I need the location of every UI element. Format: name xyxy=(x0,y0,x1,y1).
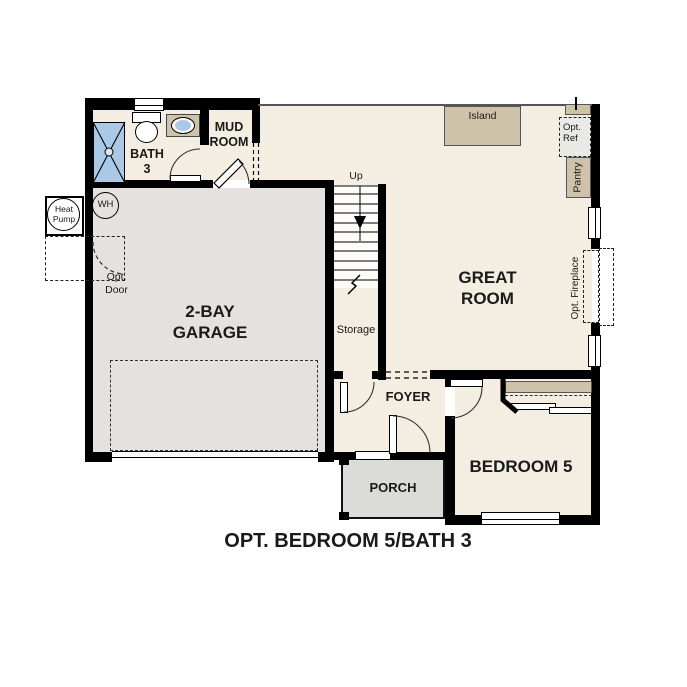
counter-tick xyxy=(575,97,577,110)
great-room-window-lower xyxy=(588,335,601,367)
optional-door-label: Opt. Door xyxy=(95,271,138,297)
wall-top xyxy=(85,98,258,110)
wall-garage-right xyxy=(325,183,334,462)
optional-fireplace-inner xyxy=(583,250,599,323)
floor-plan: BATH 3 MUD ROOM Heat Pump WH Opt. Door 2… xyxy=(0,0,687,687)
porch-post-bottom xyxy=(339,512,349,520)
heat-pump-label: Heat Pump xyxy=(45,205,83,225)
closet-bypass-door-2 xyxy=(549,407,592,414)
storage-door-leaf xyxy=(340,382,348,413)
up-label: Up xyxy=(342,170,370,183)
optional-fireplace-outer xyxy=(599,248,614,326)
bedroom5-label: BEDROOM 5 xyxy=(446,457,596,478)
bath3-label: BATH 3 xyxy=(122,147,172,178)
great-room-label: GREAT ROOM xyxy=(430,268,545,309)
mudroom-garage-door-opening xyxy=(213,180,250,188)
optional-fireplace-label: Opt. Fireplace xyxy=(570,228,582,348)
pantry-label: Pantry xyxy=(572,127,585,227)
wall-garage-bottom-left xyxy=(85,452,112,462)
foyer-label: FOYER xyxy=(375,389,441,405)
closet-shelf xyxy=(505,381,592,393)
sink-bowl xyxy=(175,120,191,131)
garage-label: 2-BAY GARAGE xyxy=(140,302,280,343)
mudroom-label: MUD ROOM xyxy=(203,120,255,151)
wall-front-left xyxy=(331,452,355,460)
porch-label: PORCH xyxy=(341,480,445,496)
front-door-leaf xyxy=(389,415,397,454)
wall-storage-bottom-right xyxy=(372,371,386,379)
toilet-bowl xyxy=(135,121,158,143)
kitchen-counter xyxy=(565,104,591,115)
storage-label: Storage xyxy=(328,324,384,337)
plan-cut-line-top xyxy=(258,104,592,106)
bedroom5-door-leaf xyxy=(450,379,483,387)
wall-greatroom-bottom xyxy=(430,370,600,379)
stairwell-floor xyxy=(334,185,378,288)
bedroom5-window xyxy=(481,512,560,525)
shower xyxy=(93,122,125,183)
closet-rod-dashed xyxy=(505,395,592,396)
wall-front-right xyxy=(391,452,445,460)
bath-door-leaf xyxy=(170,175,201,182)
garage-door xyxy=(112,451,318,458)
front-door-threshold xyxy=(355,451,391,460)
island-label: Island xyxy=(444,110,521,123)
water-heater-label: WH xyxy=(92,199,119,211)
garage-parking-outline xyxy=(110,360,318,451)
plan-title: OPT. BEDROOM 5/BATH 3 xyxy=(133,529,563,553)
wall-stair-right xyxy=(378,184,386,380)
bath-window xyxy=(134,98,164,111)
bedroom5-floor xyxy=(455,377,591,517)
great-room-window-upper xyxy=(588,207,601,239)
wall-storage-bottom-left xyxy=(325,371,343,379)
